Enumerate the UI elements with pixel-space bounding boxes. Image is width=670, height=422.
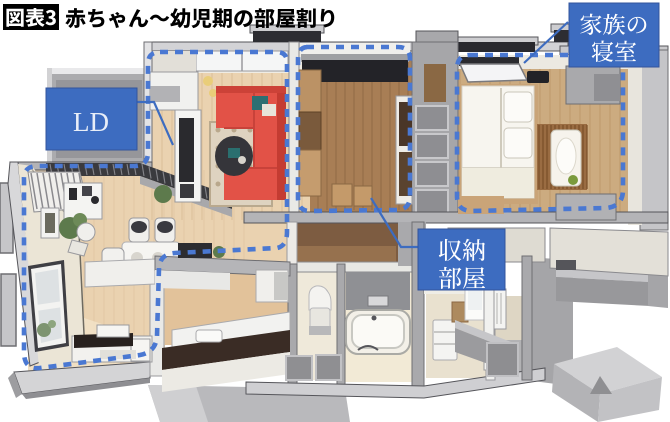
svg-text:LD: LD [73, 107, 109, 137]
